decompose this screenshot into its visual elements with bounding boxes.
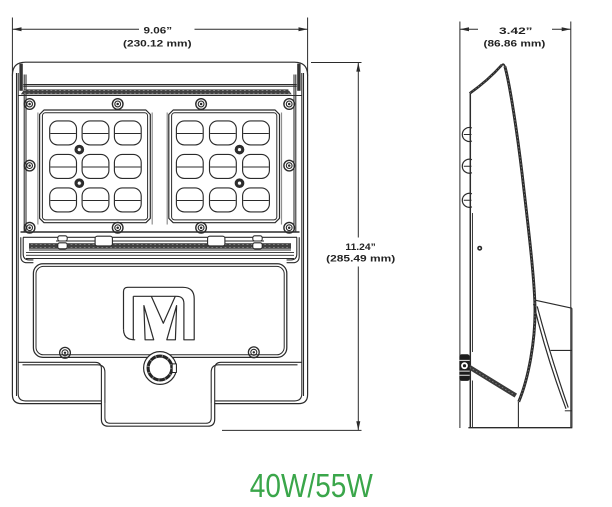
svg-text:3.42”: 3.42”: [499, 26, 533, 37]
svg-text:(230.12 mm): (230.12 mm): [123, 39, 192, 50]
svg-text:11.24”: 11.24”: [345, 242, 376, 253]
svg-text:40W/55W: 40W/55W: [250, 467, 374, 504]
svg-text:(86.86 mm): (86.86 mm): [484, 39, 546, 50]
svg-text:(285.49 mm): (285.49 mm): [326, 253, 395, 264]
svg-text:9.06”: 9.06”: [144, 26, 173, 37]
